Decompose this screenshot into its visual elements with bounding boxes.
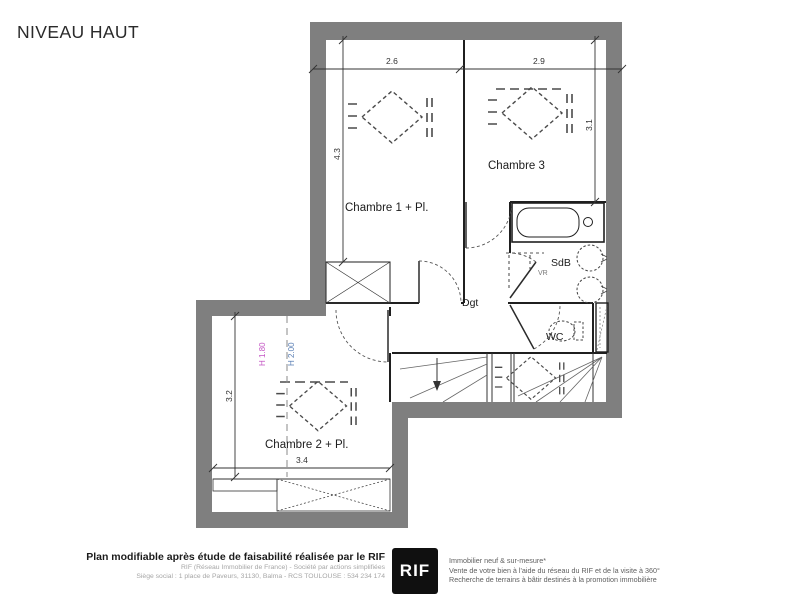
velux-icon-stairs bbox=[495, 357, 564, 400]
floor-plan-page: NIVEAU HAUT bbox=[0, 0, 800, 600]
stair-direction-arrow bbox=[433, 358, 441, 391]
stair-risers bbox=[487, 353, 593, 402]
walls bbox=[196, 22, 622, 528]
wall-lower-left bbox=[196, 300, 212, 528]
door-leaf-sdb bbox=[510, 262, 536, 298]
dim-label-ch1-depth: 4.3 bbox=[332, 148, 342, 160]
height-label-180: H 1.80 bbox=[258, 342, 267, 366]
dim-label-ch2-depth: 3.2 bbox=[224, 390, 234, 402]
room-label-chambre1: Chambre 1 + Pl. bbox=[345, 202, 428, 214]
dim-label-ch1-width: 2.6 bbox=[386, 56, 398, 66]
dim-label-ch2-width: 3.4 bbox=[296, 455, 308, 465]
wall-lower-right bbox=[392, 402, 408, 528]
door-arc-chambre3 bbox=[466, 202, 512, 248]
dim-label-ch3-depth: 3.1 bbox=[584, 119, 594, 131]
footer-right-line3: Recherche de terrains à bâtir destinés à… bbox=[449, 575, 749, 585]
dim-label-ch3-width: 2.9 bbox=[533, 56, 545, 66]
closet-chambre2 bbox=[213, 479, 390, 511]
footer-right-block: Immobilier neuf & sur-mesure* Vente de v… bbox=[449, 556, 749, 585]
rif-logo: RIF bbox=[392, 548, 438, 594]
door-arcs bbox=[336, 202, 560, 362]
footer-right-line1: Immobilier neuf & sur-mesure* bbox=[449, 556, 749, 566]
fixtures bbox=[213, 203, 608, 511]
closet-chambre1 bbox=[326, 262, 390, 303]
room-label-chambre3: Chambre 3 bbox=[488, 160, 545, 172]
annotation-vr: VR bbox=[538, 270, 548, 277]
floor-plan-drawing: Chambre 1 + Pl. Chambre 3 SdB VR Dgt WC … bbox=[0, 0, 800, 600]
doors bbox=[336, 202, 560, 362]
door-leaves bbox=[388, 202, 536, 362]
wall-stairs-bottom bbox=[392, 402, 622, 418]
wall-lower-bottom bbox=[196, 512, 408, 528]
door-leaf-wc bbox=[510, 305, 534, 349]
wall-chambre2-top bbox=[196, 300, 326, 316]
room-label-chambre2: Chambre 2 + Pl. bbox=[265, 439, 348, 451]
wall-right bbox=[606, 22, 622, 418]
bathtub-icon bbox=[512, 203, 604, 242]
velux-icon-chambre2 bbox=[276, 381, 356, 430]
washbasin-icons bbox=[577, 245, 607, 303]
velux-icon-chambre1 bbox=[348, 91, 432, 143]
room-label-wc: WC bbox=[546, 331, 564, 343]
stair-winders-left bbox=[400, 357, 487, 402]
door-arc-chambre1 bbox=[419, 261, 461, 303]
footer-address-line: Siège social : 1 place de Paveurs, 31130… bbox=[60, 573, 385, 582]
footer-left-block: Plan modifiable après étude de faisabili… bbox=[60, 551, 385, 581]
wall-upper-left bbox=[310, 22, 326, 316]
room-label-sdb: SdB bbox=[551, 257, 571, 269]
page-title: NIVEAU HAUT bbox=[17, 22, 139, 43]
door-arc-chambre2 bbox=[336, 310, 388, 362]
dim-line-ch2-width bbox=[209, 464, 394, 472]
washbasin-icon bbox=[577, 277, 603, 303]
wall-top bbox=[310, 22, 622, 40]
footer-bold-line: Plan modifiable après étude de faisabili… bbox=[60, 551, 385, 564]
washbasin-icon bbox=[577, 245, 603, 271]
footer-right-line2: Vente de votre bien à l'aide du réseau d… bbox=[449, 566, 749, 576]
door-arc-sdb bbox=[510, 253, 536, 262]
rif-logo-text: RIF bbox=[400, 561, 430, 581]
height-label-200: H 2.00 bbox=[287, 342, 296, 366]
room-label-dgt: Dgt bbox=[462, 297, 478, 309]
velux-icon-chambre3 bbox=[488, 87, 572, 139]
footer-company-line: RIF (Réseau Immobilier de France) - Soci… bbox=[60, 564, 385, 573]
